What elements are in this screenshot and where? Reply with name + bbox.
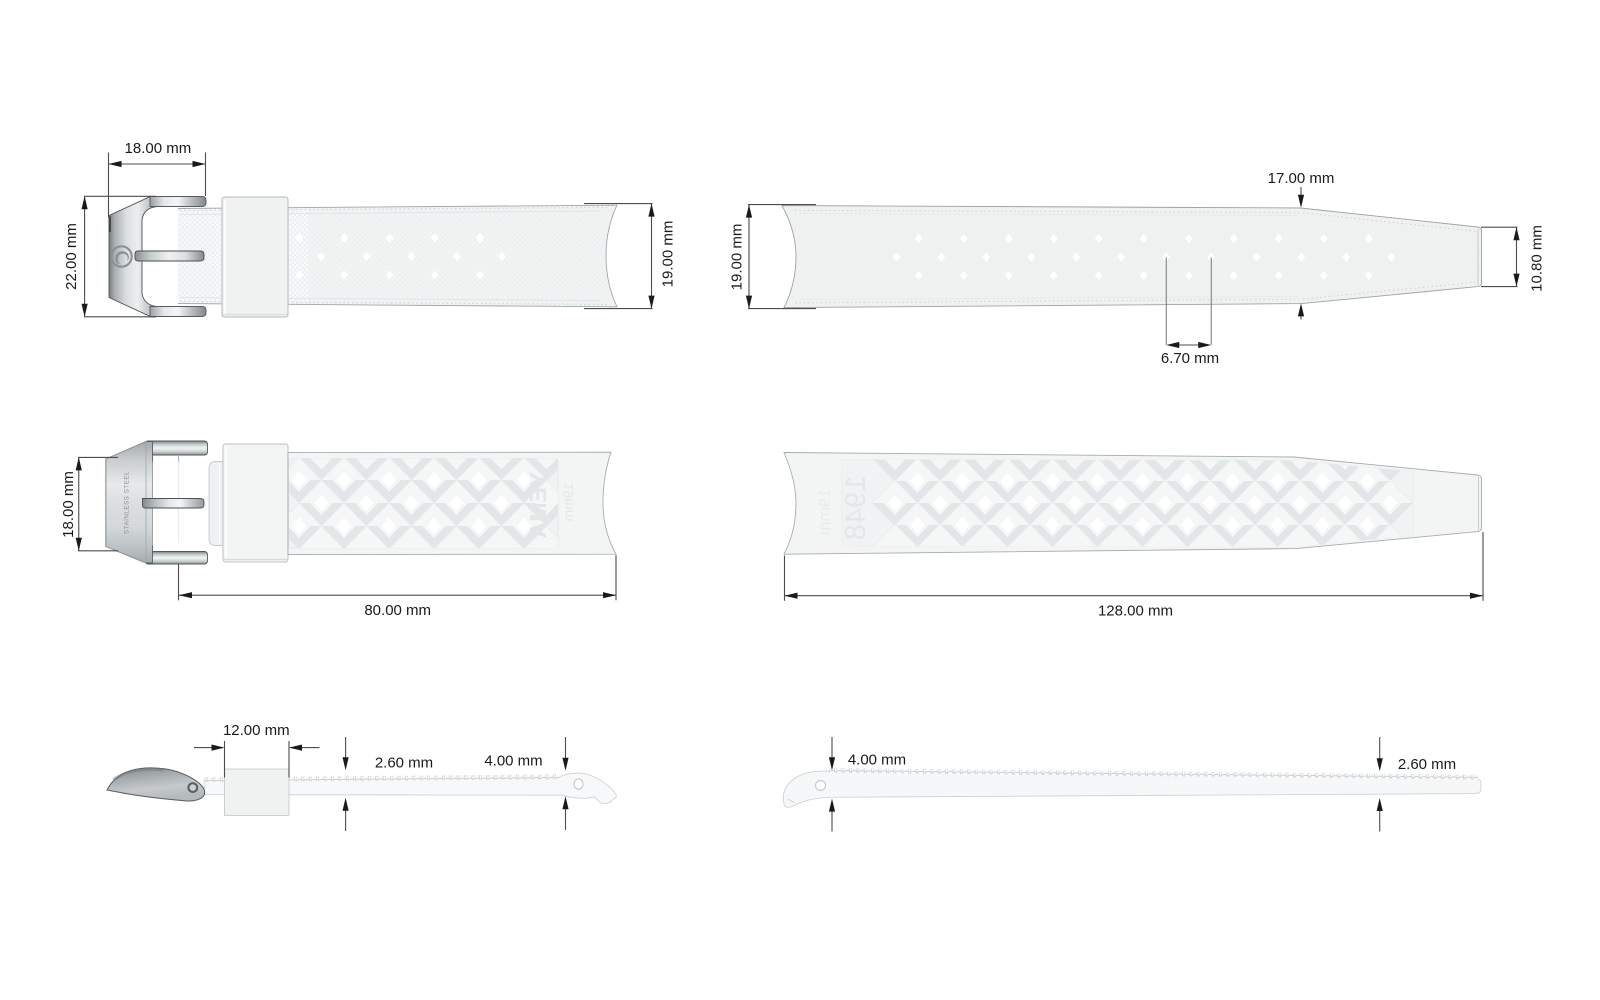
svg-text:19mm: 19mm (560, 483, 576, 522)
svg-text:4.00 mm: 4.00 mm (484, 753, 542, 770)
svg-text:STAINLESS STEEL: STAINLESS STEEL (124, 471, 131, 534)
svg-text:19.00 mm: 19.00 mm (659, 221, 676, 288)
svg-text:19.00 mm: 19.00 mm (728, 224, 745, 291)
svg-text:17.00 mm: 17.00 mm (1268, 170, 1335, 187)
svg-text:18.00 mm: 18.00 mm (60, 471, 77, 538)
svg-text:22.00 mm: 22.00 mm (63, 223, 80, 290)
svg-text:YEMA: YEMA (525, 472, 551, 538)
svg-text:1948: 1948 (840, 476, 872, 541)
svg-text:12.00 mm: 12.00 mm (223, 722, 290, 739)
svg-text:80.00 mm: 80.00 mm (364, 602, 431, 619)
svg-text:4.00 mm: 4.00 mm (848, 752, 906, 769)
svg-text:128.00 mm: 128.00 mm (1098, 602, 1173, 619)
svg-text:19mm: 19mm (815, 488, 834, 535)
svg-text:18.00 mm: 18.00 mm (125, 140, 192, 157)
svg-text:6.70 mm: 6.70 mm (1161, 350, 1219, 367)
svg-text:10.80 mm: 10.80 mm (1529, 225, 1546, 292)
svg-text:2.60 mm: 2.60 mm (1398, 756, 1456, 773)
svg-text:2.60 mm: 2.60 mm (375, 754, 433, 771)
